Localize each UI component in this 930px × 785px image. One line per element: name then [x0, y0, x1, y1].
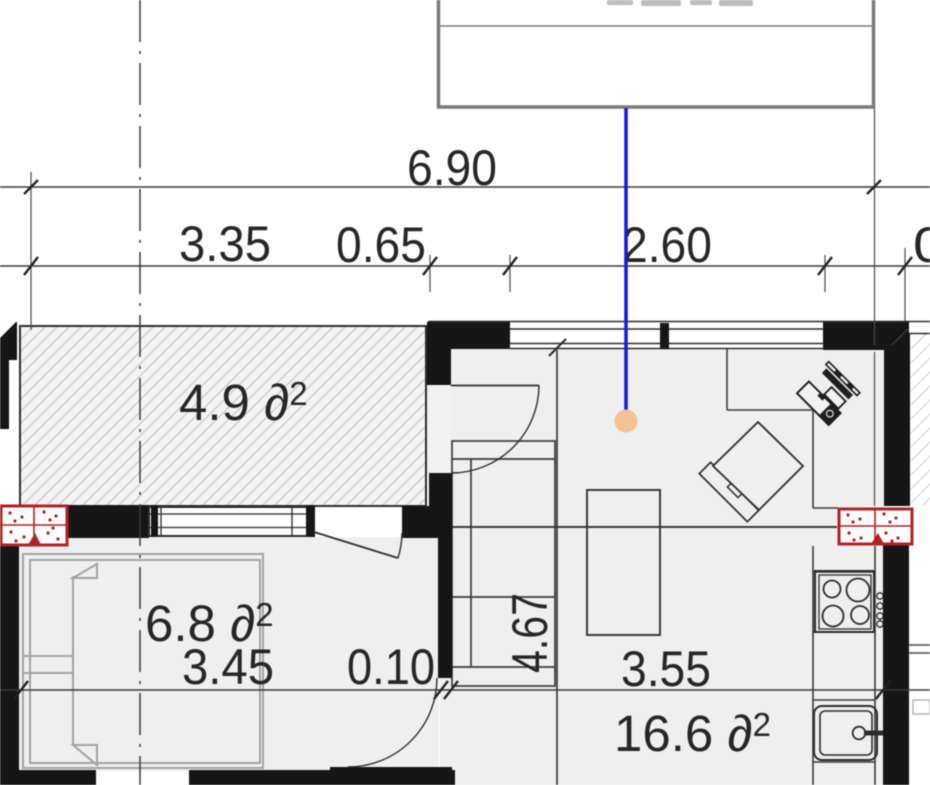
svg-text:16.6 ∂2: 16.6 ∂2 — [614, 705, 771, 762]
svg-text:6.90: 6.90 — [407, 140, 497, 196]
svg-text:3.35: 3.35 — [179, 216, 271, 272]
svg-text:4.67: 4.67 — [502, 593, 558, 673]
svg-text:0.65: 0.65 — [336, 217, 426, 273]
svg-text:2.60: 2.60 — [622, 217, 712, 273]
svg-text:6.8 ∂2: 6.8 ∂2 — [145, 595, 274, 652]
svg-text:0.: 0. — [913, 217, 930, 273]
svg-text:3.55: 3.55 — [621, 641, 711, 697]
svg-text:0.10: 0.10 — [347, 639, 435, 695]
svg-text:4.9 ∂2: 4.9 ∂2 — [179, 374, 308, 431]
